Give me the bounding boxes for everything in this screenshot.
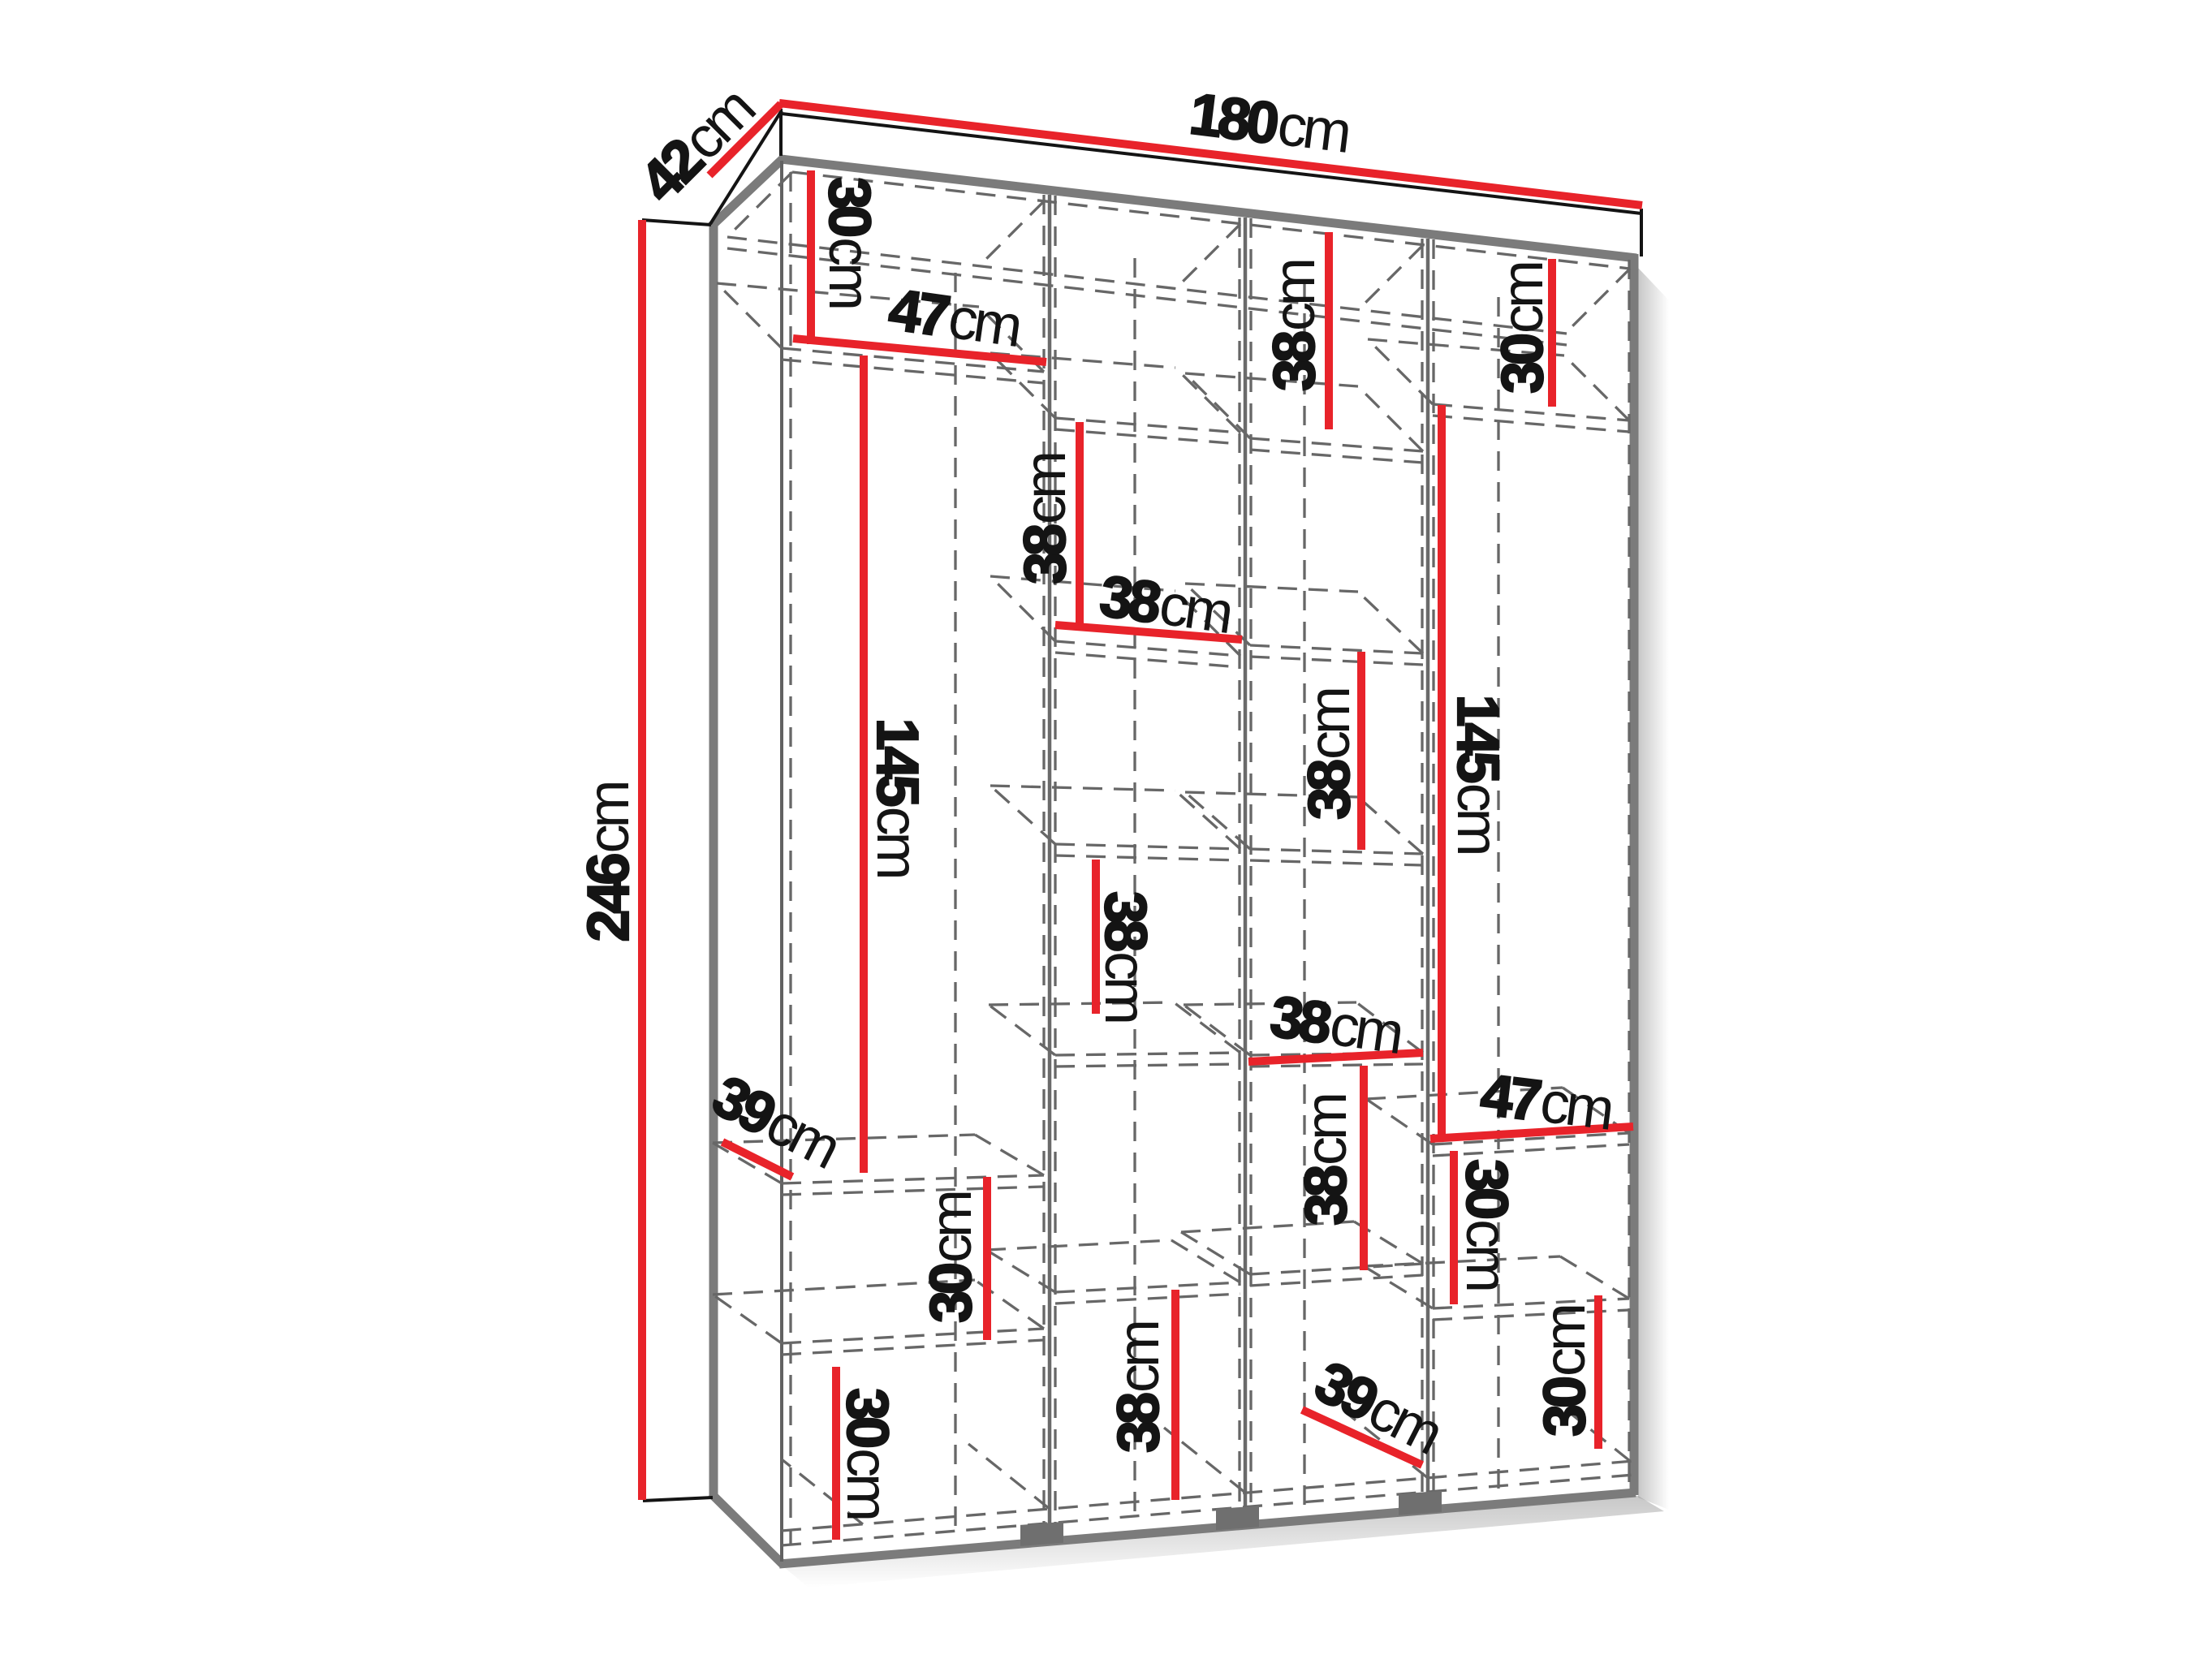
svg-text:30cm: 30cm <box>919 1192 984 1323</box>
svg-text:38cm: 38cm <box>1106 1322 1171 1453</box>
svg-text:38cm: 38cm <box>1262 261 1327 391</box>
svg-text:38cm: 38cm <box>1294 1095 1359 1226</box>
svg-text:30cm: 30cm <box>834 1388 899 1519</box>
svg-text:145cm: 145cm <box>865 717 929 877</box>
svg-text:39cm: 39cm <box>703 1063 849 1180</box>
svg-text:38cm: 38cm <box>1297 689 1362 820</box>
svg-text:30cm: 30cm <box>817 177 882 308</box>
svg-text:38cm: 38cm <box>1013 454 1078 584</box>
svg-text:30cm: 30cm <box>1533 1306 1598 1437</box>
svg-text:246cm: 246cm <box>576 782 641 942</box>
svg-text:30cm: 30cm <box>1490 263 1555 394</box>
svg-text:145cm: 145cm <box>1445 694 1510 853</box>
svg-text:30cm: 30cm <box>1454 1159 1519 1290</box>
svg-text:38cm: 38cm <box>1093 891 1158 1022</box>
